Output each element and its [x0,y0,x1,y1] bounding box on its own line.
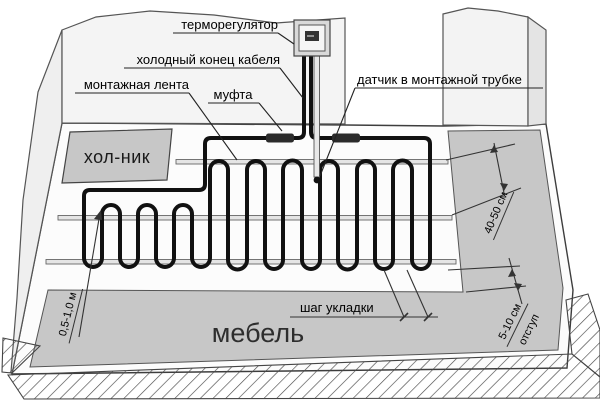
sensor-conduit [314,56,320,177]
fridge-label: хол-ник [84,147,150,167]
sensor-label: датчик в монтажной трубке [357,72,522,87]
cold-end-label: холодный конец кабеля [137,52,280,67]
coupling-label: муфта [214,87,254,102]
right-wall-side [528,17,546,126]
sensor-dot [314,177,321,184]
floor-heating-diagram: терморегулятор холодный конец кабеля мон… [0,0,600,400]
coupling-left [266,134,294,143]
diagram-canvas: терморегулятор холодный конец кабеля мон… [0,0,600,400]
right-wall-face [443,8,528,126]
furniture-label: мебель [212,318,304,348]
mounting-tape-label: монтажная лента [84,77,190,92]
laying-step-label: шаг укладки [300,300,374,315]
thermostat-label: терморегулятор [181,17,278,32]
